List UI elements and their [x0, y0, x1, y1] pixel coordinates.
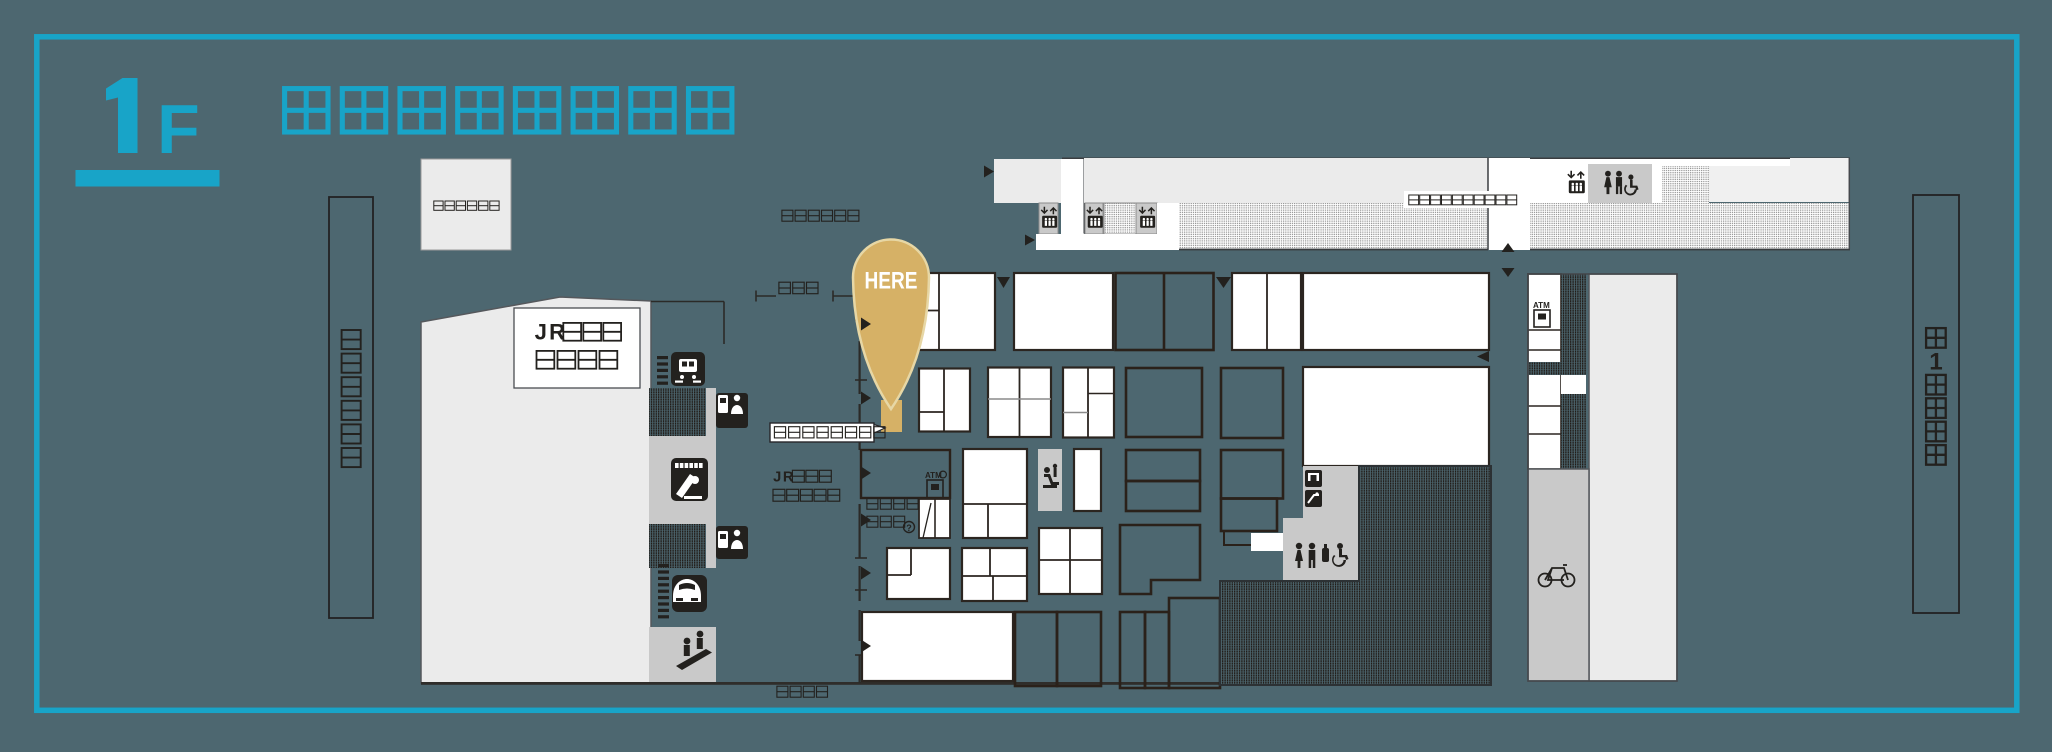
- svg-text:F: F: [157, 90, 200, 168]
- svg-text:J: J: [773, 469, 781, 485]
- svg-text:?: ?: [906, 523, 912, 533]
- svg-text:ATM: ATM: [1533, 301, 1550, 310]
- svg-text:1: 1: [1929, 349, 1942, 376]
- svg-text:HERE: HERE: [865, 268, 918, 295]
- svg-text:J: J: [535, 319, 547, 344]
